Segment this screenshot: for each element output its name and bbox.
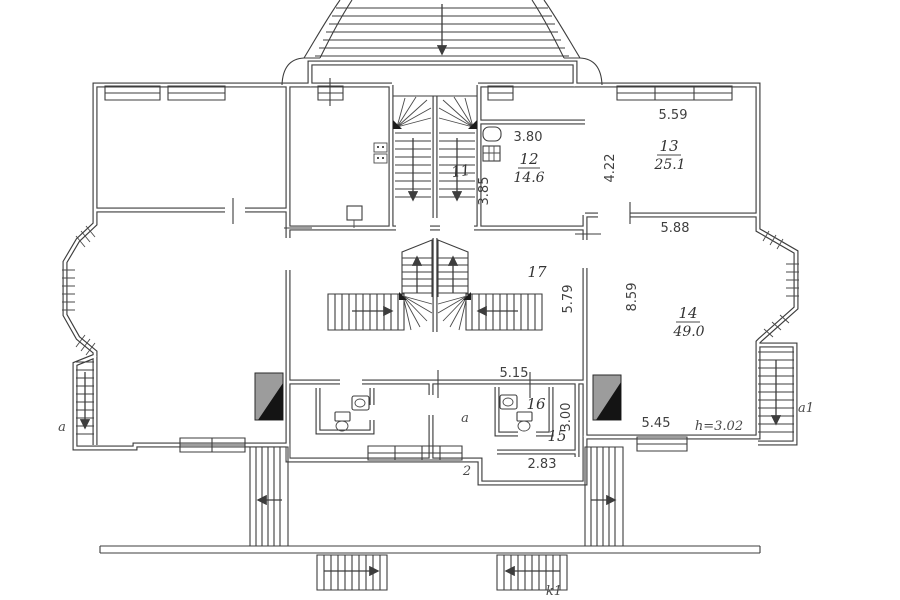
toilet-icon [335, 412, 350, 421]
chimney-right [593, 375, 621, 420]
connector-stair-left [250, 447, 288, 546]
marker-vestibule: a [461, 411, 469, 426]
room-11-label: 11 [450, 161, 471, 181]
floor-plan-drawing: 11 12 14.6 13 25.1 14 49.0 15 16 17 3.80… [0, 0, 900, 600]
room-12-number: 12 [519, 150, 538, 168]
door-ticks [233, 78, 630, 398]
terrace-platform [100, 546, 760, 553]
dim-room12-depth: 3.85 [477, 177, 492, 206]
marker-left-stair: a [58, 420, 66, 435]
dim-room14-width-bottom: 5.45 [642, 416, 671, 431]
floor-plan-page: 11 12 14.6 13 25.1 14 49.0 15 16 17 3.80… [0, 0, 900, 600]
dim-room13-width: 5.59 [659, 108, 688, 123]
room-14-area: 49.0 [672, 324, 704, 340]
toilet-icon [517, 412, 532, 421]
marker-right-stair: a1 [798, 401, 814, 416]
chimney-left [255, 373, 283, 420]
dim-room15-width: 2.83 [528, 457, 557, 472]
dim-room13-depth: 4.22 [603, 154, 618, 183]
exterior-stair-left [76, 362, 94, 434]
marker-section-2: 2 [462, 464, 471, 479]
dim-room15-depth: 3.00 [559, 403, 574, 432]
connector-stair-right [585, 447, 623, 546]
marker-terrace: k1 [546, 584, 562, 599]
dim-room14-depth: 8.59 [625, 283, 640, 312]
dim-hall-depth: 5.79 [561, 285, 576, 314]
room-13-area: 25.1 [653, 157, 685, 173]
wall-cores [65, 63, 796, 483]
intercom-icon [483, 127, 501, 141]
dim-room14-width-top: 5.88 [661, 221, 690, 236]
window-bands [105, 86, 732, 460]
dim-ceiling-height: h=3.02 [695, 419, 743, 434]
panel-icon [483, 146, 500, 161]
room-16-label: 16 [526, 395, 546, 413]
dim-room12-width: 3.80 [514, 130, 543, 145]
room-17-label: 17 [527, 263, 547, 281]
radiator-icon [347, 206, 362, 220]
room-14-number: 14 [678, 304, 697, 322]
terrace-stair-left [317, 555, 387, 590]
room-13-number: 13 [659, 137, 678, 155]
bathroom-left-fixtures [335, 396, 369, 431]
exterior-stair-right [758, 352, 794, 432]
room-12-area: 14.6 [513, 170, 544, 186]
dim-lower-width: 5.15 [500, 366, 529, 381]
